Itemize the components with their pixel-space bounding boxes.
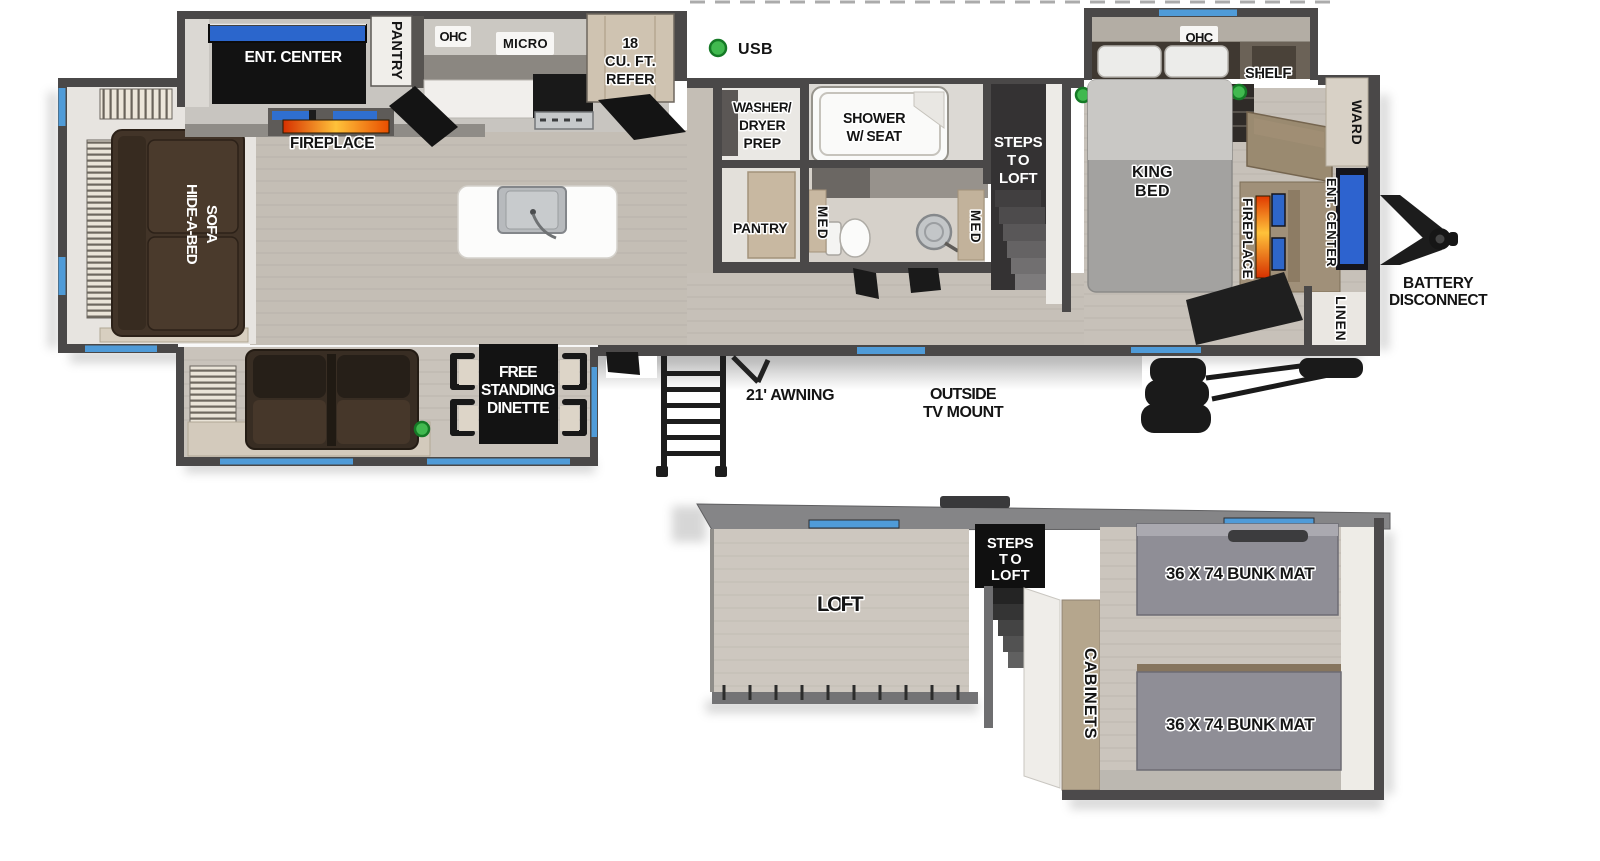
svg-text:CABINETS: CABINETS [1081, 648, 1099, 739]
svg-text:LOFT: LOFT [817, 593, 864, 616]
svg-text:WASHER/: WASHER/ [733, 99, 792, 115]
svg-text:ENT. CENTER: ENT. CENTER [1324, 178, 1339, 267]
svg-text:PANTRY: PANTRY [733, 220, 788, 236]
svg-text:LOFT: LOFT [999, 170, 1037, 187]
svg-text:18: 18 [623, 36, 638, 52]
svg-text:TO: TO [999, 552, 1021, 568]
svg-text:USB: USB [738, 41, 772, 58]
svg-text:FREE: FREE [499, 364, 537, 381]
svg-text:CU. FT.: CU. FT. [605, 54, 656, 70]
svg-text:LINEN: LINEN [1333, 296, 1349, 340]
svg-text:DINETTE: DINETTE [487, 400, 549, 417]
svg-text:MED: MED [815, 206, 830, 239]
svg-text:TV MOUNT: TV MOUNT [923, 404, 1004, 421]
svg-text:WARD: WARD [1349, 100, 1365, 144]
svg-text:SOFA: SOFA [203, 205, 220, 244]
svg-text:LOFT: LOFT [991, 568, 1030, 584]
svg-text:21' AWNING: 21' AWNING [746, 387, 834, 404]
svg-text:36 X 74 BUNK MAT: 36 X 74 BUNK MAT [1166, 715, 1315, 734]
svg-text:BED: BED [1135, 183, 1169, 200]
svg-text:36 X 74 BUNK MAT: 36 X 74 BUNK MAT [1166, 564, 1315, 583]
svg-text:FIREPLACE: FIREPLACE [290, 135, 374, 152]
svg-text:SHELF: SHELF [1245, 65, 1291, 82]
svg-text:ENT. CENTER: ENT. CENTER [245, 49, 342, 66]
svg-text:BATTERY: BATTERY [1403, 275, 1474, 292]
svg-text:STANDING: STANDING [481, 382, 556, 399]
svg-text:OHC: OHC [440, 29, 468, 44]
svg-text:MICRO: MICRO [503, 36, 547, 51]
svg-text:DRYER: DRYER [739, 117, 785, 133]
svg-text:PANTRY: PANTRY [388, 21, 404, 80]
svg-text:STEPS: STEPS [994, 134, 1043, 151]
svg-text:HIDE-A-BED: HIDE-A-BED [183, 184, 200, 265]
svg-text:KING: KING [1132, 164, 1172, 181]
svg-text:FIREPLACE: FIREPLACE [1240, 198, 1255, 279]
svg-text:SHOWER: SHOWER [843, 111, 906, 127]
svg-text:STEPS: STEPS [987, 536, 1034, 552]
svg-text:REFER: REFER [606, 72, 655, 88]
svg-text:DISCONNECT: DISCONNECT [1389, 292, 1488, 309]
svg-text:TO: TO [1007, 152, 1030, 169]
svg-text:W/ SEAT: W/ SEAT [847, 129, 903, 145]
svg-text:OUTSIDE: OUTSIDE [930, 386, 997, 403]
svg-text:MED: MED [968, 210, 983, 243]
svg-text:PREP: PREP [744, 135, 781, 151]
